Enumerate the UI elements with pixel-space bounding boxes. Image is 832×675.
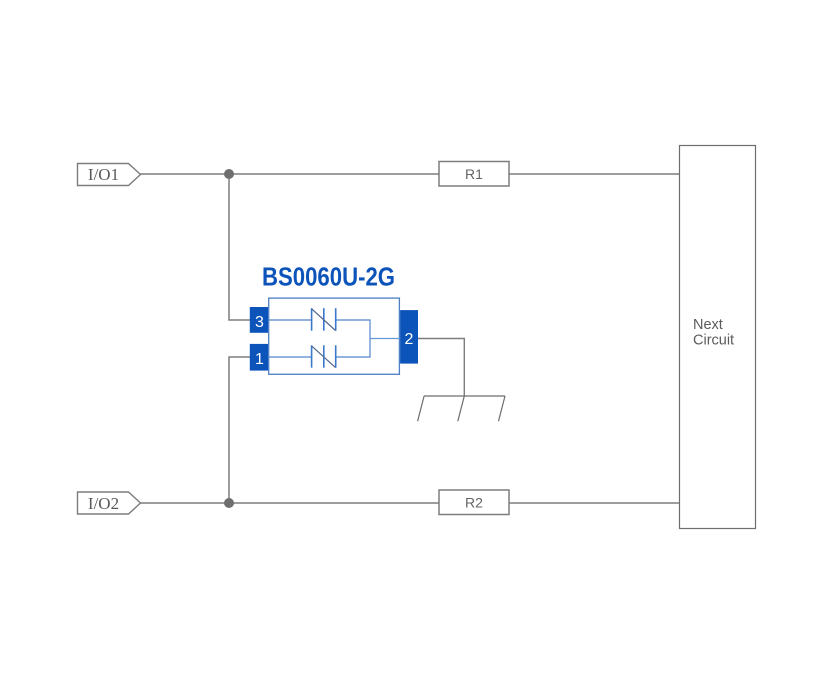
svg-text:Next: Next — [693, 317, 723, 333]
svg-text:R2: R2 — [465, 495, 483, 511]
svg-text:BS0060U-2G: BS0060U-2G — [262, 262, 395, 292]
svg-text:Circuit: Circuit — [693, 333, 734, 349]
svg-text:I/O2: I/O2 — [88, 494, 119, 513]
svg-text:1: 1 — [255, 351, 264, 368]
svg-text:2: 2 — [405, 331, 414, 348]
svg-text:I/O1: I/O1 — [88, 165, 119, 184]
svg-text:3: 3 — [255, 314, 264, 331]
svg-text:R1: R1 — [465, 166, 483, 182]
